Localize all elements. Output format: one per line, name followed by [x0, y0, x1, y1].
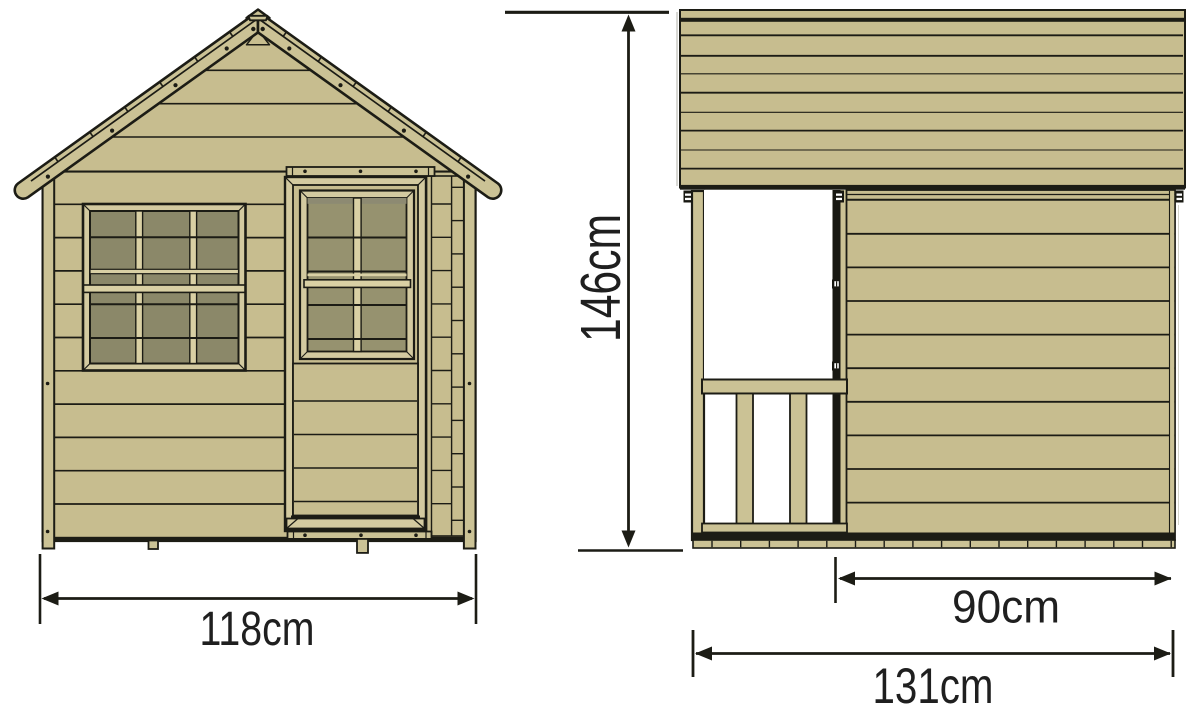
svg-text:131cm: 131cm [873, 658, 994, 712]
svg-text:90cm: 90cm [952, 581, 1060, 633]
svg-text:146cm: 146cm [569, 214, 633, 342]
svg-text:118cm: 118cm [200, 603, 315, 656]
